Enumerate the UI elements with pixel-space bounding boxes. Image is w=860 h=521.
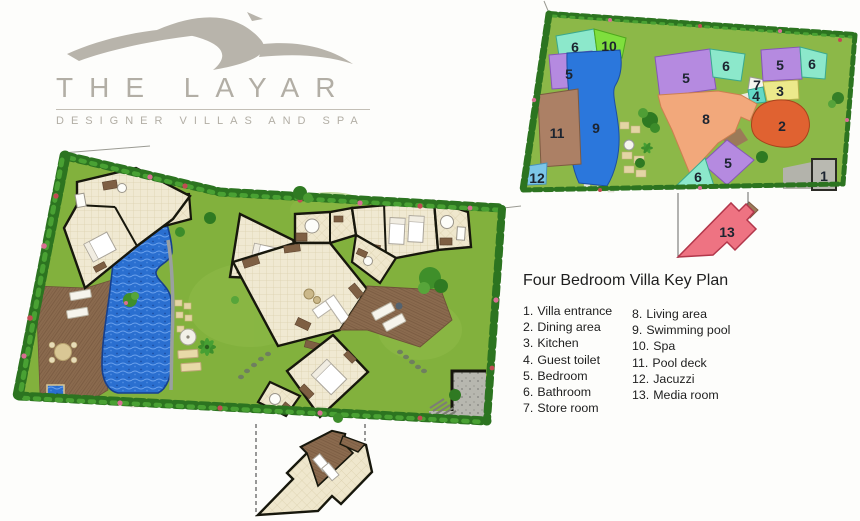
key-label: 2: [778, 118, 786, 134]
key-label: 8: [702, 111, 710, 127]
villa-site-plan-page: 6 10 5 9 11 12 5 6 7 5 6 3 4 8 2 5 6 1 1…: [0, 0, 860, 521]
round-bathtub: [441, 216, 454, 229]
round-bathtub: [305, 219, 319, 233]
legend-title: Four Bedroom Villa Key Plan: [523, 272, 823, 290]
key-plan-legend: Four Bedroom Villa Key Plan 1.Villa entr…: [523, 272, 823, 416]
key-label: 12: [529, 170, 545, 186]
key-label: 5: [682, 70, 690, 86]
legend-item: 7.Store room: [523, 400, 632, 416]
key-label: 13: [719, 224, 735, 240]
bed: [389, 218, 405, 245]
round-bathtub: [270, 394, 281, 405]
brand-name: THE LAYAR: [56, 72, 374, 104]
palm-tree: [198, 338, 216, 356]
legend-item: 10.Spa: [632, 338, 730, 354]
round-table: [55, 344, 72, 361]
key-label: 11: [550, 125, 565, 141]
key-label: 5: [776, 57, 784, 73]
legend-item: 5.Bedroom: [523, 368, 632, 384]
key-plan-regions: [527, 29, 836, 258]
legend-item: 3.Kitchen: [523, 335, 632, 351]
brand-rule: [56, 109, 370, 110]
key-label: 10: [601, 38, 617, 54]
legend-item: 11.Pool deck: [632, 355, 730, 371]
brand-logo: THE LAYAR DESIGNER VILLAS AND SPA: [56, 6, 374, 127]
mini-umbrella: [624, 140, 634, 150]
bathtub: [75, 193, 86, 207]
pool-deck: [36, 280, 112, 398]
legend-item: 1.Villa entrance: [523, 303, 632, 319]
key-label: 6: [722, 58, 730, 74]
key-label: 6: [694, 169, 702, 185]
legend-item: 9.Swimming pool: [632, 322, 730, 338]
legend-item: 8.Living area: [632, 306, 730, 322]
sun-lounger: [181, 362, 202, 371]
washbasin: [118, 184, 127, 193]
legend-item: 6.Bathroom: [523, 384, 632, 400]
key-region-media-room: [678, 203, 756, 257]
key-label: 3: [776, 83, 784, 99]
key-label: 6: [571, 39, 579, 55]
key-label: 5: [565, 66, 573, 82]
legend-column-2: 8.Living area 9.Swimming pool 10.Spa 11.…: [632, 303, 730, 416]
key-label: 4: [752, 88, 760, 104]
legend-item: 12.Jacuzzi: [632, 371, 730, 387]
vanity: [296, 233, 307, 241]
deck-table: [396, 303, 403, 310]
brand-tagline: DESIGNER VILLAS AND SPA: [56, 115, 374, 127]
legend-item: 2.Dining area: [523, 319, 632, 335]
key-plan: 6 10 5 9 11 12 5 6 7 5 6 3 4 8 2 5 6 1 1…: [523, 13, 855, 258]
bed: [408, 216, 424, 243]
legend-item: 13.Media room: [632, 387, 730, 403]
sun-lounger: [178, 349, 199, 358]
legend-item: 4.Guest toilet: [523, 352, 632, 368]
key-label: 5: [724, 155, 732, 171]
coffee-table: [304, 289, 314, 299]
key-label: 9: [592, 120, 600, 136]
key-label: 1: [820, 168, 828, 184]
key-label: 6: [808, 56, 816, 72]
media-room-building: [256, 424, 372, 516]
sail-logo-icon: [65, 6, 365, 72]
legend-column-1: 1.Villa entrance 2.Dining area 3.Kitchen…: [523, 303, 632, 416]
